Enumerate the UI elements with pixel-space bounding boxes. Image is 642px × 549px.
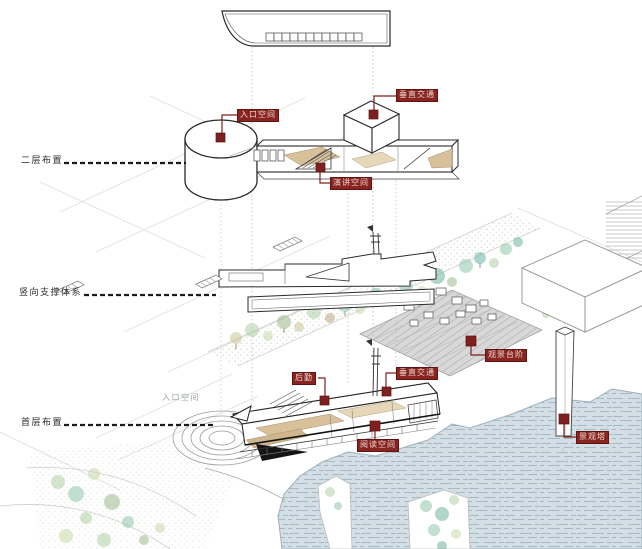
section-label-second-floor: 二层布置 — [21, 157, 63, 166]
tag-viewing-steps: 观景台阶 — [485, 349, 527, 362]
tag-vertical-circulation-upper: 垂直交通 — [396, 89, 438, 102]
section-label-vertical-support: 竖向支撑体系 — [19, 289, 82, 298]
roof-layer — [222, 11, 390, 46]
section-leader-lines — [64, 163, 216, 425]
tag-reading-space: 阅读空间 — [357, 439, 399, 452]
tag-vertical-circulation-lower: 垂直交通 — [396, 367, 438, 380]
architecture-exploded-axon-diagram: 二层布置 竖向支撑体系 首层布置 入口空间 入口空间 垂直交通 演讲空间 观景台… — [0, 0, 642, 549]
axon-drawing — [0, 0, 642, 549]
tag-entrance-space: 入口空间 — [237, 109, 279, 122]
ground-label-entrance: 入口空间 — [162, 394, 200, 402]
tag-lecture-space: 演讲空间 — [330, 177, 372, 190]
tag-landscape-tower: 景观塔 — [576, 431, 609, 444]
section-label-first-floor: 首层布置 — [21, 419, 63, 428]
tag-service-space: 后勤 — [292, 372, 316, 385]
support-system-layer — [58, 225, 436, 312]
second-floor-layer — [185, 101, 459, 200]
first-floor-layer — [231, 339, 440, 461]
